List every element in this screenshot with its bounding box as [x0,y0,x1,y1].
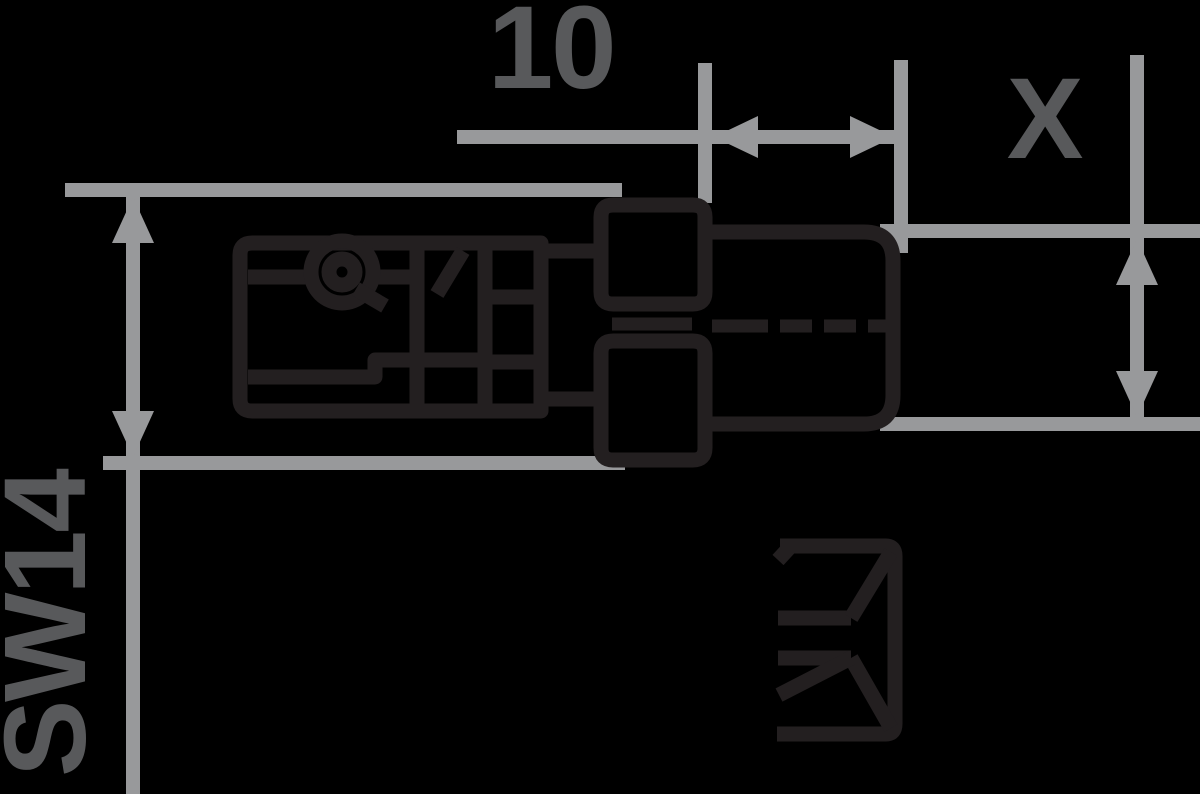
hex-upper-flat [601,205,705,304]
centerline [612,324,898,326]
arrowhead-up-icon [112,197,154,243]
valve-step-line [248,360,485,377]
dimension-value-sw14: SW14 [0,469,110,777]
dimension-value-10: 10 [488,0,615,114]
detent-ball-inner [329,259,355,285]
arrowhead-down-icon [112,411,154,457]
dimension-thread-length: 10 [457,0,901,253]
dimension-thread-size: X [880,55,1200,424]
arrowhead-right-icon [850,116,894,158]
symbol-diagonal-top [851,552,891,618]
body-outline [240,243,541,411]
part-outline [240,205,898,460]
arrowhead-up-icon [1116,239,1158,285]
arrowhead-down-icon [1116,371,1158,417]
arrowhead-left-icon [714,116,758,158]
hex-lower-flat [601,341,705,460]
drawing-canvas: 10 X SW14 [0,0,1200,794]
technical-drawing: 10 X SW14 [0,0,1200,794]
dimension-value-x: X [1007,55,1083,183]
chamfer-line [437,251,463,294]
symbol-diagonal-bottom [851,658,891,728]
coupling-profile-symbol [777,546,895,734]
